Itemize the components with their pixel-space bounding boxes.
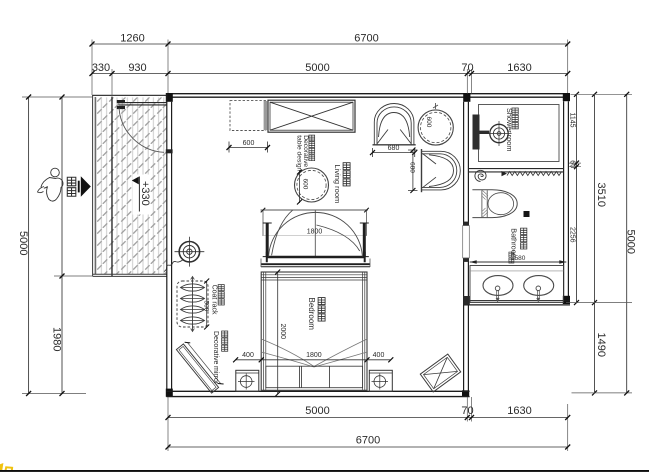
svg-text:330: 330 [92,62,110,74]
svg-text:6700: 6700 [354,33,378,45]
svg-text:5000: 5000 [305,62,329,74]
svg-text:6700: 6700 [356,435,380,447]
svg-text:1800: 1800 [306,352,322,359]
svg-text:500: 500 [203,301,210,312]
svg-text:70: 70 [461,405,473,417]
svg-text:600: 600 [301,179,308,190]
svg-text:580: 580 [515,255,526,262]
svg-text:Shower room: Shower room [505,108,514,151]
svg-text:1260: 1260 [120,33,144,45]
svg-text:400: 400 [373,352,385,359]
svg-text:680: 680 [409,162,416,173]
svg-text:Living room: Living room [333,165,342,204]
svg-text:1630: 1630 [507,405,531,417]
svg-text:600: 600 [243,140,255,147]
svg-text:600: 600 [425,117,432,128]
svg-text:2256: 2256 [568,227,575,243]
svg-text:5000: 5000 [17,231,29,255]
svg-text:60: 60 [568,160,575,168]
svg-text:680: 680 [388,145,400,152]
svg-text:1980: 1980 [51,327,63,351]
svg-text:table design: table design [296,135,303,171]
svg-text:3510: 3510 [595,183,607,207]
svg-text:Coat rack: Coat rack [211,285,218,315]
svg-text:930: 930 [128,62,146,74]
svg-text:mirror: mirror [212,366,219,385]
svg-text:5000: 5000 [624,230,636,254]
svg-text:70: 70 [461,62,473,74]
svg-text:+330: +330 [139,181,151,206]
svg-text:2000: 2000 [279,324,286,340]
svg-text:1145: 1145 [568,113,575,128]
svg-text:Decorative: Decorative [212,331,219,365]
svg-text:1630: 1630 [507,62,531,74]
svg-text:1800: 1800 [307,229,323,236]
svg-text:1490: 1490 [595,333,607,357]
svg-text:400: 400 [242,352,254,359]
svg-text:5000: 5000 [305,405,329,417]
svg-text:Bedroom: Bedroom [307,298,316,331]
